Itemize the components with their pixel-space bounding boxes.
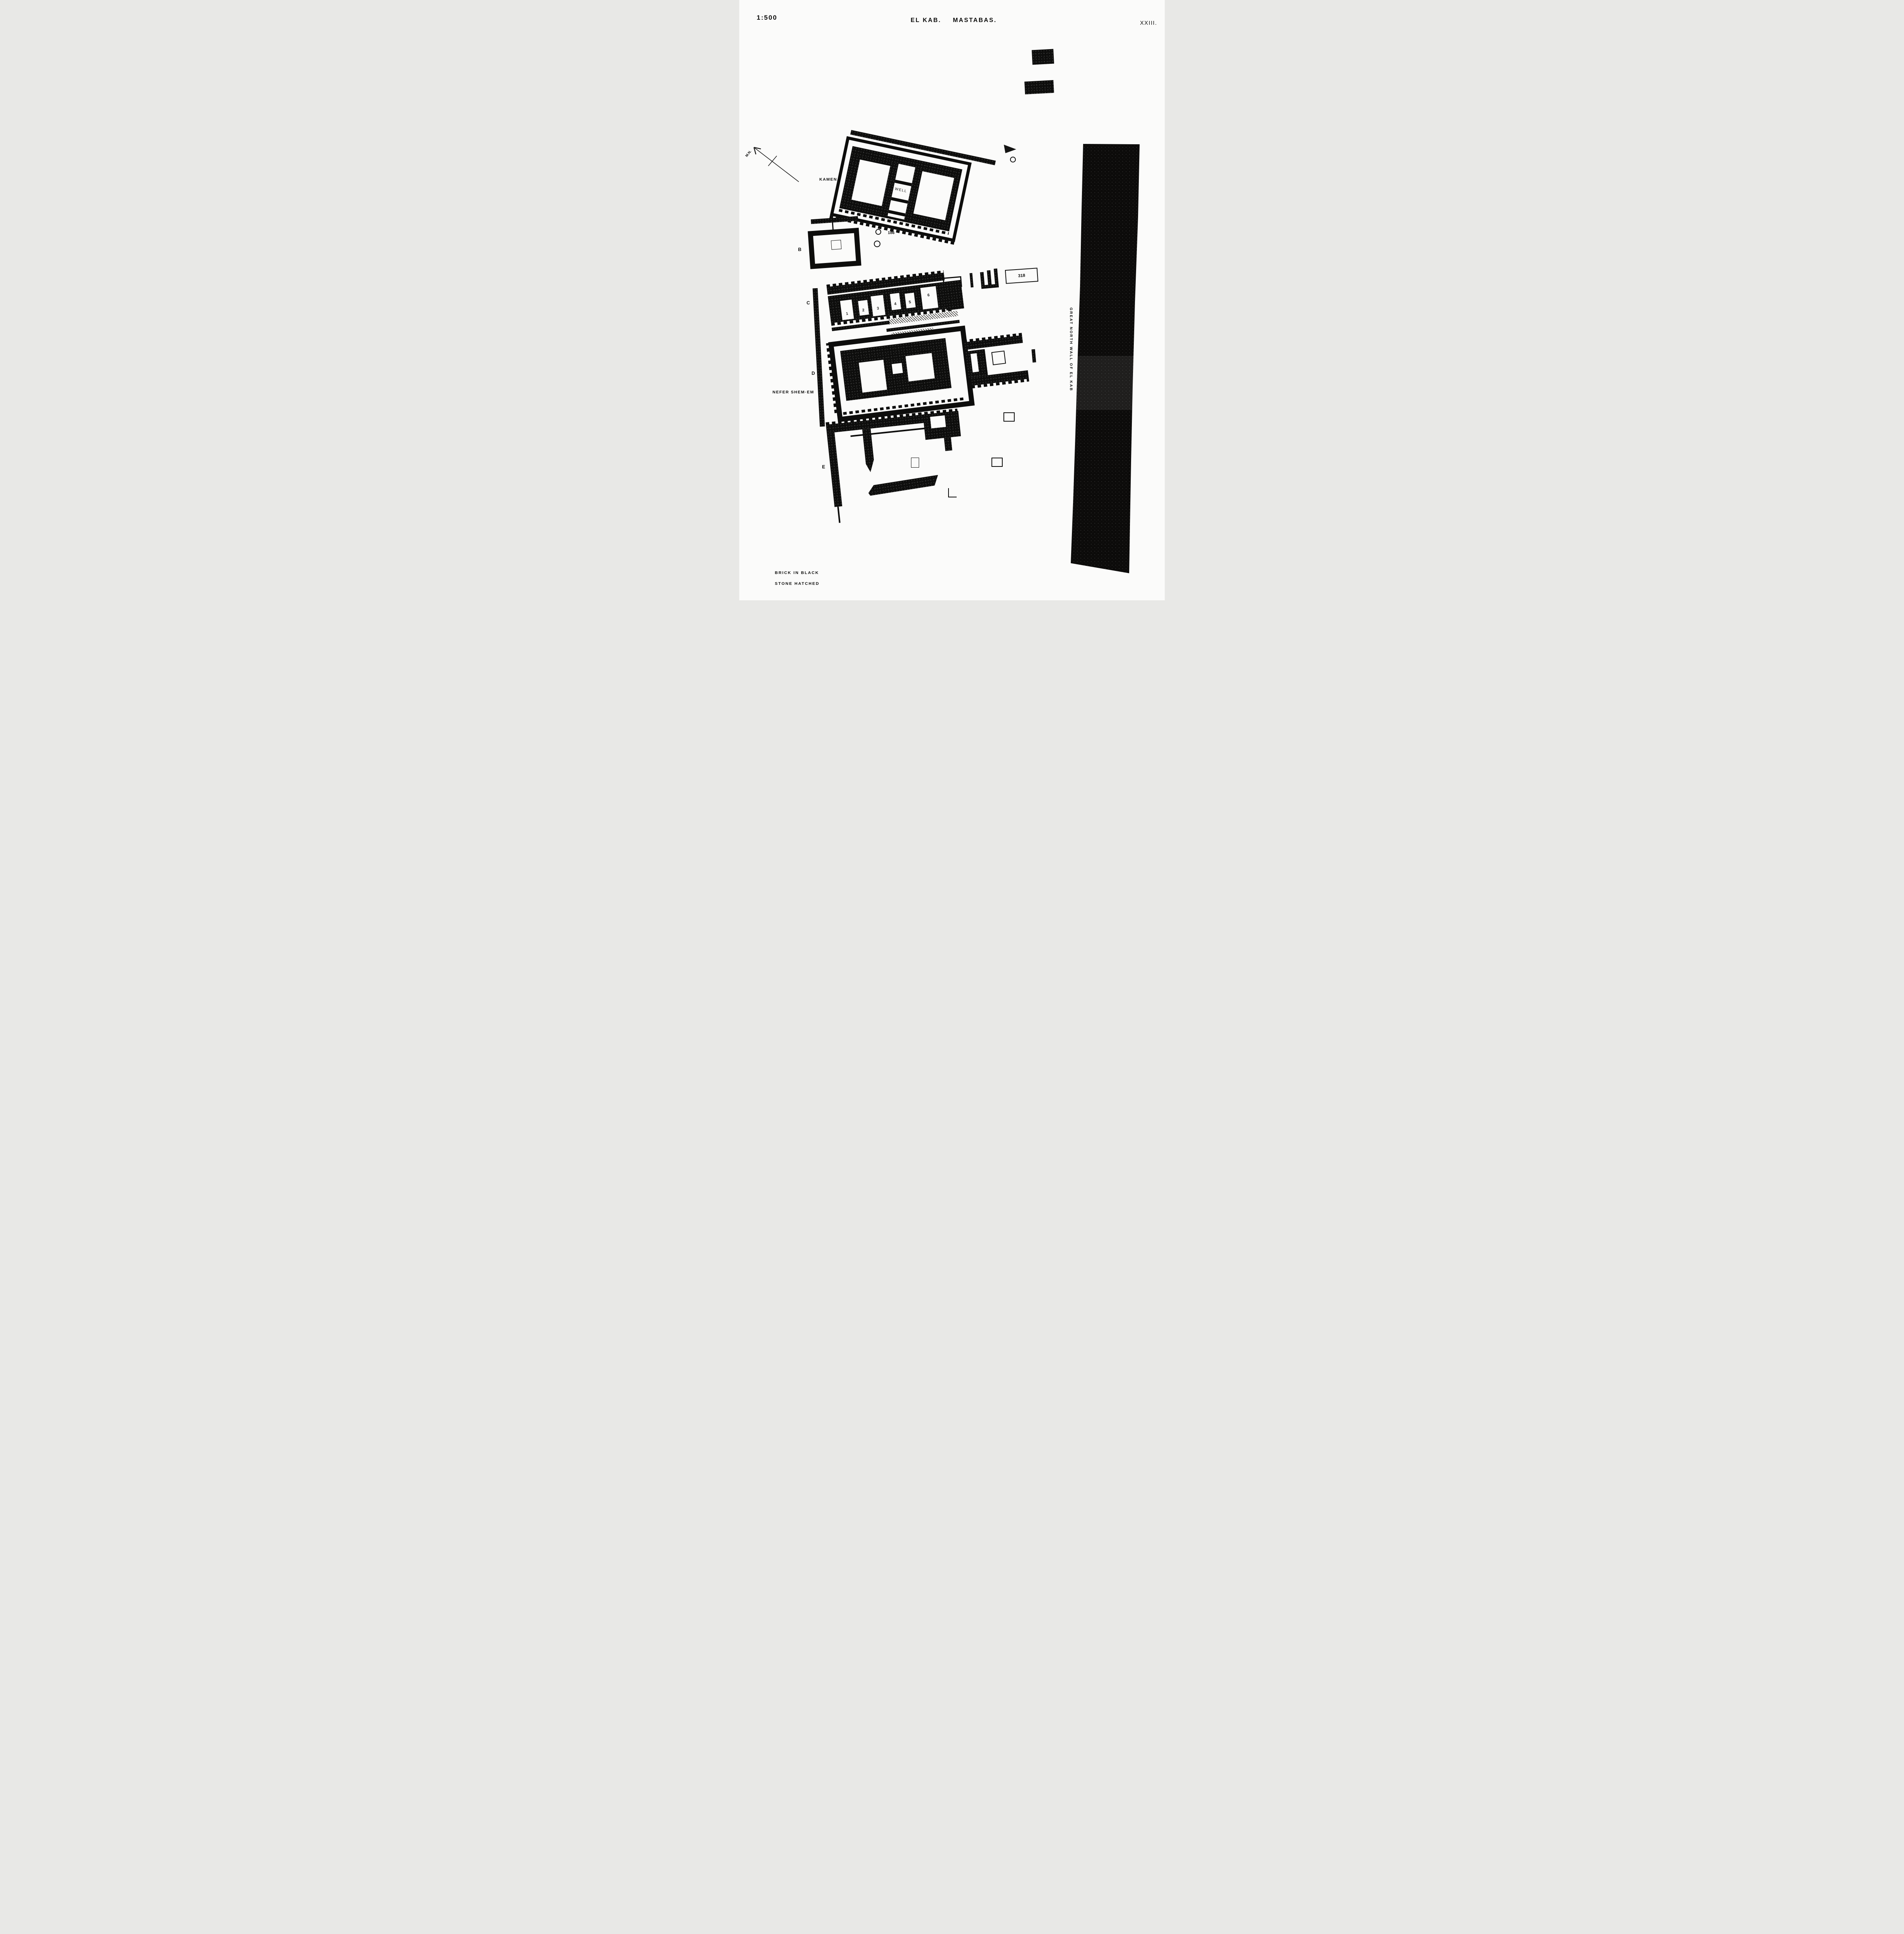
mastaba-a-well-shaft: WELL xyxy=(887,164,915,219)
plate-title-subject: MASTABAS. xyxy=(953,17,997,24)
mastaba-e-label: E xyxy=(822,464,825,470)
wall-fragment-east xyxy=(1032,349,1036,363)
wall-fragment xyxy=(969,273,973,287)
mastaba-d-chamber-west xyxy=(859,360,887,393)
well-rung xyxy=(891,197,908,204)
wall-corner-mark xyxy=(948,488,957,497)
mastaba-e-east-notch xyxy=(930,415,946,429)
plate-page: 1:500 EL KAB. MASTABAS. XXIII. M.N. WELL… xyxy=(739,0,1165,600)
mastaba-e-mid-wall xyxy=(862,429,875,473)
mastaba-d-shaft xyxy=(892,363,903,374)
plate-title: EL KAB. MASTABAS. xyxy=(911,17,997,24)
mastaba-d-chamber-east xyxy=(906,353,935,382)
well-rung xyxy=(888,210,906,217)
mastaba-a-chamber-east xyxy=(913,171,954,220)
chamber-2: 2 xyxy=(858,300,869,316)
mastaba-c-east-block xyxy=(943,280,964,311)
mastaba-east-slot xyxy=(971,353,979,372)
chamber-2-number: 2 xyxy=(862,308,865,313)
mastaba-d-label: D xyxy=(812,371,815,376)
chamber-4-number: 4 xyxy=(894,302,897,306)
legend-brick: BRICK IN BLACK xyxy=(775,571,819,575)
west-boundary-wall xyxy=(813,288,825,427)
chamber-5: 5 xyxy=(905,293,916,309)
chamber-3: 3 xyxy=(871,295,885,316)
plate-title-site: EL KAB. xyxy=(911,17,941,24)
tomb-186-label: 186 xyxy=(888,231,895,235)
legend-stone: STONE HATCHED xyxy=(775,581,819,586)
great-wall-label: GREAT NORTH WALL OF EL KAB xyxy=(1069,308,1073,391)
tomb-circle xyxy=(874,241,880,247)
mastaba-e-east-block xyxy=(923,411,961,440)
north-arrow-icon xyxy=(746,142,802,187)
shaft-box xyxy=(1003,412,1015,422)
mastaba-e-west-wall-tail xyxy=(837,507,840,523)
mastaba-a-name: KAMENA xyxy=(819,177,841,182)
mastaba-east-shaft xyxy=(991,350,1006,365)
tomb-318-box: 318 xyxy=(1005,268,1038,284)
mastaba-a-label: A xyxy=(841,160,844,166)
mastaba-e-south-wall xyxy=(867,475,940,496)
mastaba-e-east-prong xyxy=(944,437,952,451)
tomb-circle xyxy=(1010,157,1016,162)
chamber-1-number: 1 xyxy=(846,312,848,316)
mastaba-east-west-wall xyxy=(965,349,988,378)
chamber-1: 1 xyxy=(840,299,854,320)
shaft-box xyxy=(991,458,1003,467)
great-north-wall xyxy=(1066,139,1143,576)
well-label: WELL xyxy=(894,187,907,193)
mastaba-d-name: NEFER SHEM·EM xyxy=(773,390,814,395)
mastaba-b-label: B xyxy=(798,247,802,252)
brick-bar-north-2 xyxy=(1024,80,1054,94)
mastaba-e-west-wall xyxy=(827,432,842,507)
tomb-318-label: 318 xyxy=(1018,273,1025,278)
chamber-6: 6 xyxy=(920,286,938,309)
chamber-6-number: 6 xyxy=(927,293,930,298)
brick-bar-north-1 xyxy=(1032,49,1054,65)
scale-label: 1:500 xyxy=(757,14,777,22)
mastaba-c-label: C xyxy=(807,300,810,306)
shaft-box xyxy=(911,458,919,468)
chamber-3-number: 3 xyxy=(877,306,879,311)
chamber-4: 4 xyxy=(890,293,901,310)
plate-number: XXIII. xyxy=(1140,20,1157,26)
chamber-5-number: 5 xyxy=(909,300,911,305)
well-rung xyxy=(895,180,912,186)
tomb-186-circle xyxy=(875,229,881,235)
mastaba-a-chamber-west xyxy=(851,159,890,206)
survey-mark-icon xyxy=(1002,143,1018,155)
mastaba-b-shaft xyxy=(831,240,842,250)
